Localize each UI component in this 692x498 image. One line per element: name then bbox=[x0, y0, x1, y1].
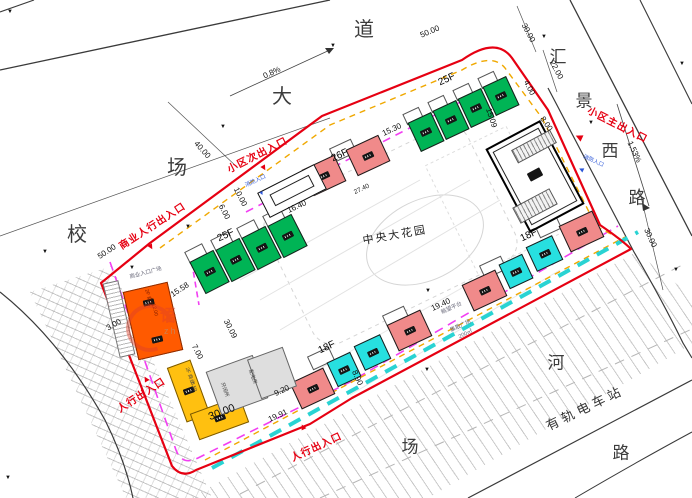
road-name-char: 场 bbox=[402, 439, 419, 456]
elevation-marker-icon: ▼ bbox=[679, 61, 685, 67]
unit-number-tag bbox=[403, 325, 416, 335]
unit-number-tag bbox=[151, 335, 163, 343]
unit-number-tag bbox=[338, 364, 351, 374]
road-name-char: 河 bbox=[548, 355, 565, 372]
unit-number-tag bbox=[229, 255, 242, 265]
unit-number-tag bbox=[306, 383, 319, 393]
road-name-char: 校 bbox=[67, 225, 87, 245]
unit-number-tag bbox=[420, 127, 433, 137]
road-name-char: 道 bbox=[354, 20, 374, 40]
unit-number-tag bbox=[445, 115, 458, 125]
unit-number-tag bbox=[495, 91, 508, 101]
elevation-marker-icon: ▼ bbox=[588, 120, 594, 126]
unit-number-tag bbox=[538, 248, 551, 258]
elevation-marker-icon: ▼ bbox=[330, 43, 336, 49]
unit-number-tag bbox=[281, 231, 294, 241]
unit-number-tag bbox=[366, 347, 379, 357]
unit-number-tag bbox=[203, 267, 216, 277]
elevation-marker-icon: ▼ bbox=[7, 9, 13, 15]
unit-number-tag bbox=[510, 266, 523, 276]
elevation-marker-icon: ▼ bbox=[220, 124, 226, 130]
elevation-marker-icon: ▼ bbox=[185, 224, 191, 230]
elevation-marker-icon: ▼ bbox=[129, 265, 135, 271]
unit-number-tag bbox=[470, 103, 483, 113]
unit-number-tag bbox=[478, 285, 491, 295]
elevation-marker-icon: ▼ bbox=[5, 475, 11, 481]
unit-number-tag bbox=[362, 150, 375, 160]
road-name-char: 路 bbox=[629, 190, 646, 207]
road-name-char: 场 bbox=[167, 158, 187, 178]
site-plan: 校场大道汇景西路场河路有轨电车站中央大花园40.000.8%50.0050.00… bbox=[0, 0, 692, 498]
elevation-marker-icon: ▼ bbox=[673, 267, 679, 273]
elevation-marker-icon: ▼ bbox=[42, 249, 48, 255]
road-name-char: 大 bbox=[272, 87, 292, 107]
elevation-marker-icon: ▼ bbox=[425, 288, 431, 294]
unit-number-tag bbox=[575, 226, 588, 236]
elevation-marker-icon: ▼ bbox=[541, 34, 547, 40]
unit-number-tag bbox=[255, 243, 268, 253]
road-name-char: 路 bbox=[613, 445, 630, 462]
road-name-char: 西 bbox=[602, 143, 619, 160]
elevation-marker-icon: ▼ bbox=[424, 367, 430, 373]
